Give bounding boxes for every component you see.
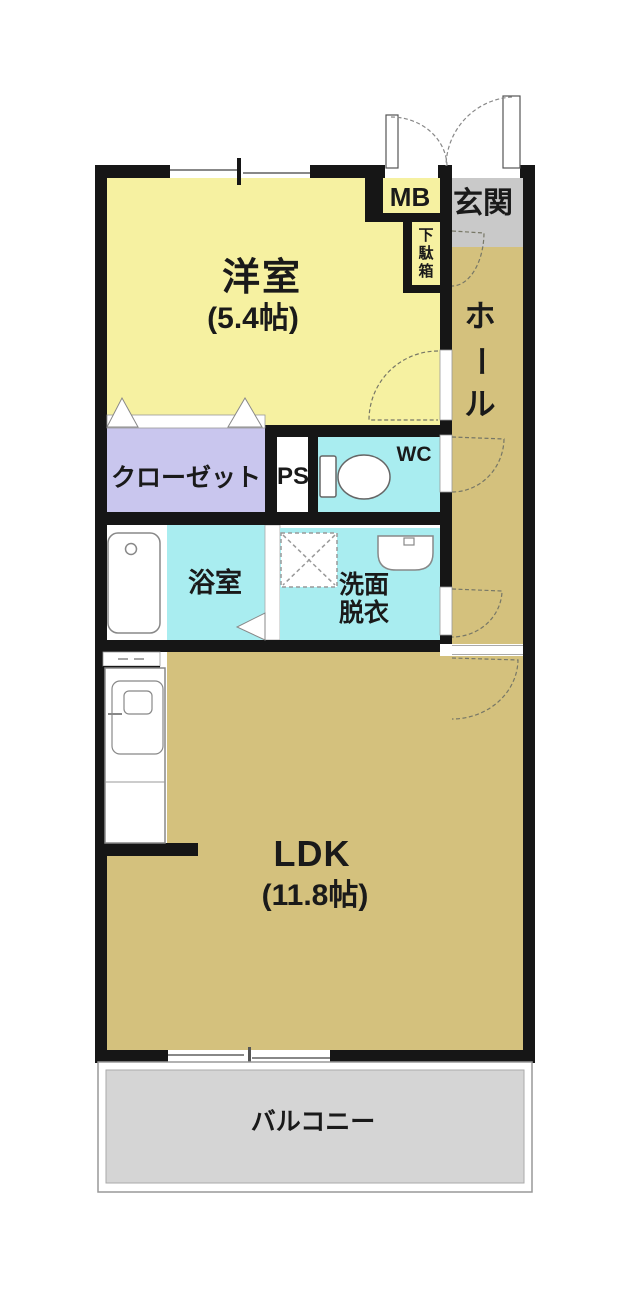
shoe-cabinet-char-1: 下 [418,227,433,244]
wc-door-leaf [440,435,452,492]
wall-hall-4 [440,635,452,644]
entrance-doors [386,96,520,168]
bathtub-icon [108,533,160,633]
shoe-cabinet-char-2: 駄 [418,244,434,262]
washbasin-icon [378,536,433,570]
wc-label: WC [397,443,432,466]
entrance-door-leaf [503,96,520,168]
washroom-label-2: 脱衣 [339,598,389,627]
hall-label-char-3: ル [465,387,496,422]
entrance-door-arc [446,97,512,166]
wall-right [523,165,535,1063]
wall-below-closet-row [95,512,440,525]
washroom-door-leaf [440,587,452,635]
western-room-door-leaf [440,350,452,420]
toilet-icon [320,455,390,499]
wall-bottom-1 [95,1050,168,1063]
closet-label: クローゼット [111,464,261,492]
wall-above-ps-wc [265,425,440,437]
wall-top-1 [95,165,170,178]
floor-plan-page: 洋室 (5.4帖) LDK (11.8帖) クローゼット PS WC 浴室 洗面… [0,0,640,1297]
meter-box-label: MB [390,182,430,212]
meter-box-door-leaf [386,115,398,168]
meter-box-door-arc [391,117,447,166]
wall-hall-1 [440,165,452,350]
western-room-size: (5.4帖) [207,302,299,335]
wall-hall-3 [440,492,452,587]
wall-hall-2 [440,420,452,435]
bathroom-label: 浴室 [188,567,242,598]
hall-label-char-2: ー [463,346,498,377]
floor-plan-svg: 洋室 (5.4帖) LDK (11.8帖) クローゼット PS WC 浴室 洗面… [0,0,640,1297]
ldk-size: (11.8帖) [262,879,369,912]
shoe-cabinet-char-3: 箱 [418,262,433,280]
wall-mb-bottom [365,213,452,222]
bathroom-door-strip [265,525,280,640]
wall-shoebox-left [403,222,412,293]
hall-label-char-1: ホ [465,299,496,334]
washing-machine-pan-icon [281,533,337,587]
wall-below-bath-row [95,640,440,652]
kitchen-sink-icon [105,668,165,843]
washroom-label-1: 洗面 [339,571,389,599]
entrance-label: 玄関 [453,186,513,220]
wall-kitchen-stub [95,843,198,856]
pipe-space-label: PS [277,463,309,490]
balcony-label: バルコニー [251,1108,376,1136]
room-fills [107,178,523,1050]
ldk-label: LDK [274,833,351,874]
wall-ps-wc [308,425,318,512]
wall-top-4 [520,165,535,178]
hall-ldk-threshold [440,644,523,656]
western-room-label: 洋室 [222,256,302,299]
wall-closet-ps [265,425,277,512]
wall-bottom-2 [330,1050,535,1063]
wall-left [95,165,107,1063]
